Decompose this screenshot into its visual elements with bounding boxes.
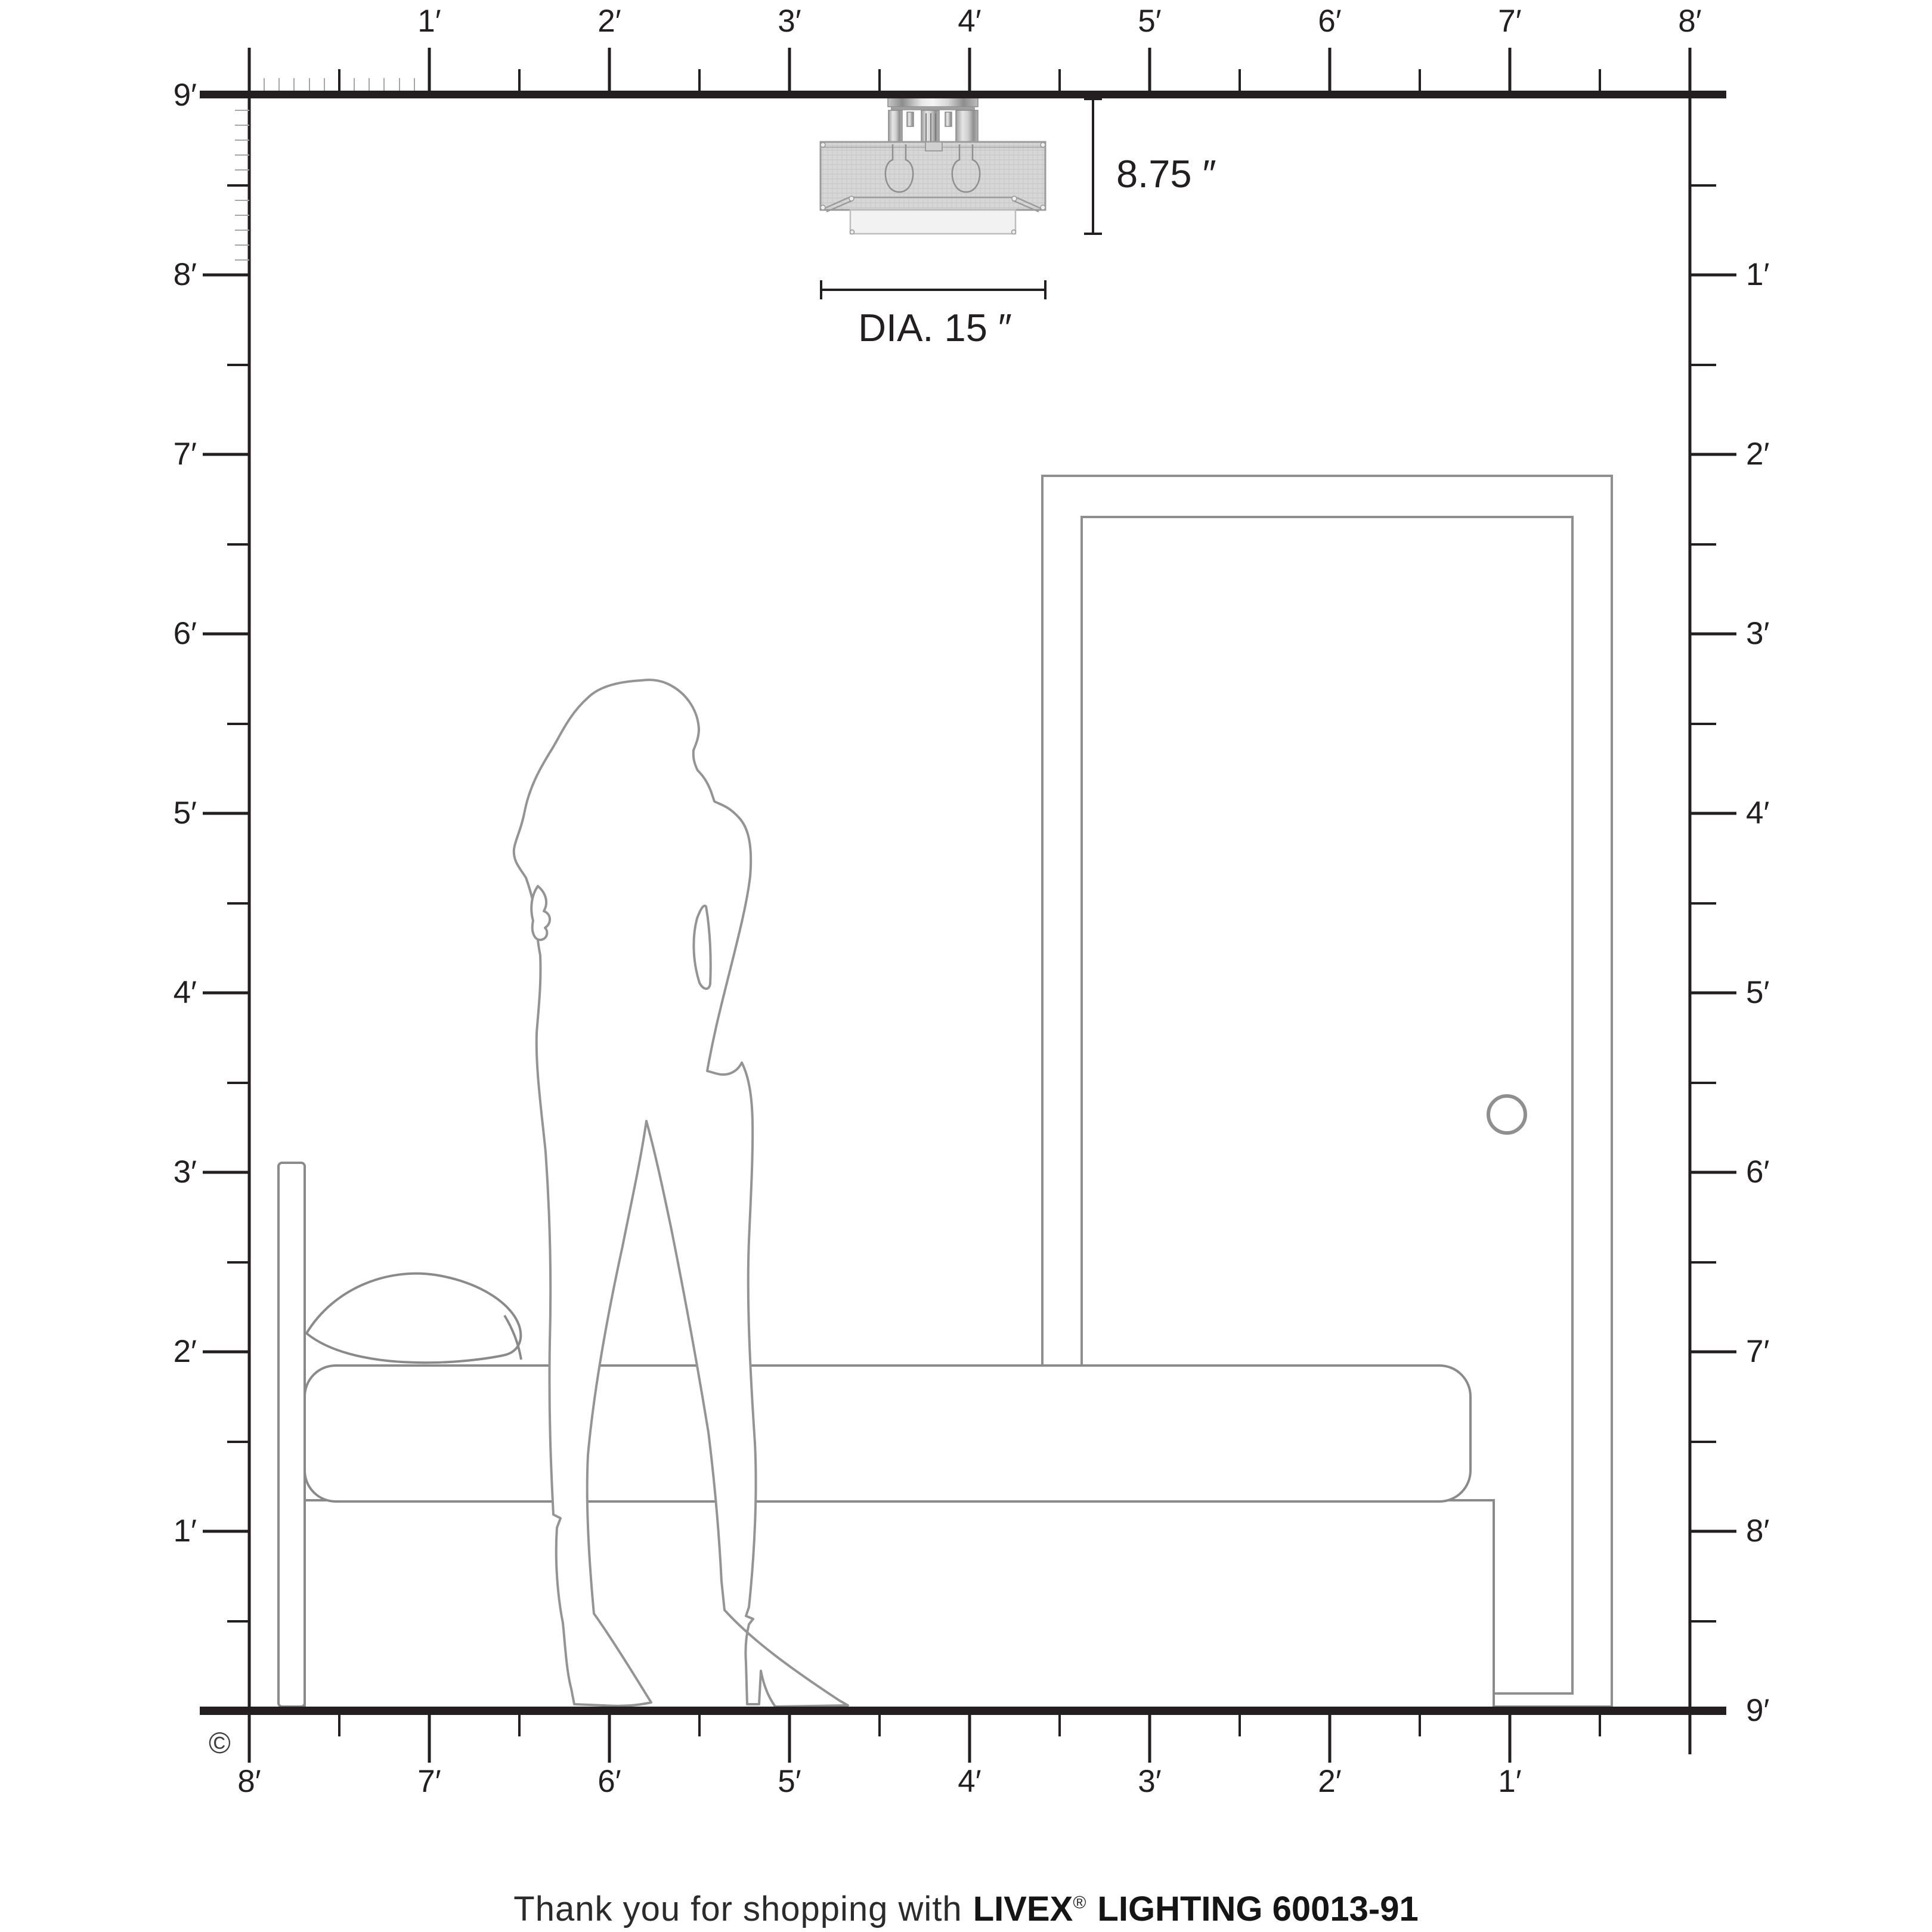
bottom-ruler-label: 5′ [748,1765,831,1798]
top-ruler-label: 1′ [388,5,471,38]
mattress [305,1366,1470,1501]
fixture-height-dimension-label: 8.75 ″ [1116,151,1216,196]
top-ruler-label: 7′ [1468,5,1552,38]
right-ruler-label: 4′ [1746,797,1877,830]
left-ruler-label: 8′ [66,258,197,292]
bottom-ruler-label: 7′ [388,1765,471,1798]
fixture-drum-shade [821,142,1045,210]
right-ruler-label: 9′ [1746,1694,1877,1727]
diameter-dimension [821,280,1045,299]
top-ruler-label: 8′ [1648,5,1732,38]
top-ruler-label: 4′ [928,5,1011,38]
left-ruler-label: 6′ [66,617,197,651]
shade-socket-notch [925,142,942,151]
right-ruler-half-ticks [1690,185,1716,1621]
height-dimension [1084,99,1102,234]
top-ruler-ticks [429,48,1510,91]
left-ruler-half-ticks [227,185,249,1621]
left-ruler-label: 4′ [66,976,197,1010]
bottom-ruler-label: 4′ [928,1765,1011,1798]
right-ruler-label: 2′ [1746,438,1877,471]
footer-thanks-text: Thank you for shopping with [513,1890,962,1928]
bottom-ruler-label: 3′ [1108,1765,1191,1798]
footer-product-number: LIGHTING 60013-91 [1097,1890,1418,1928]
left-ruler-label: 2′ [66,1335,197,1368]
top-ruler-label: 5′ [1108,5,1191,38]
right-ruler-label: 8′ [1746,1515,1877,1548]
door-knob [1488,1096,1525,1133]
bottom-ruler-label: 2′ [1288,1765,1371,1798]
left-ruler-label: 9′ [66,79,197,112]
fixture-stems [888,110,978,143]
dimension-diagram-page: 1′ 2′ 3′ 4′ 5′ 6′ 7′ 8′ 9′ 8′ 7′ 6′ 5′ 4… [0,0,1932,1932]
pillow [306,1274,521,1363]
right-ruler-label: 5′ [1746,976,1877,1010]
registered-trademark-icon: ® [1073,1893,1086,1913]
light-fixture [821,98,1045,234]
top-ruler-label: 3′ [748,5,831,38]
headboard-post [278,1163,305,1707]
fixture-canopy-flange [891,107,975,110]
bottom-ruler-label: 6′ [568,1765,651,1798]
room-scale-drawing [0,0,1932,1932]
floor-line [200,1707,1726,1715]
left-ruler-label: 3′ [66,1156,197,1189]
bed [278,1163,1494,1708]
right-ruler-label: 7′ [1746,1335,1877,1368]
left-ruler-label: 1′ [66,1515,197,1548]
top-ruler-label: 2′ [568,5,651,38]
left-ruler-label: 7′ [66,438,197,471]
footer-brand-line: Thank you for shopping withLIVEX®LIGHTIN… [0,1889,1932,1929]
fixture-diameter-dimension-label: DIA. 15 ″ [810,305,1060,350]
fixture-diffuser [850,210,1015,234]
fixture-canopy [888,98,978,107]
bed-base [305,1500,1494,1708]
bottom-ruler-label: 8′ [208,1765,291,1798]
right-ruler-label: 6′ [1746,1156,1877,1189]
right-ruler-label: 1′ [1746,258,1877,292]
top-ruler-label: 6′ [1288,5,1371,38]
footer-brand-name: LIVEX [973,1890,1073,1928]
right-ruler-label: 3′ [1746,617,1877,651]
left-ruler-label: 5′ [66,797,197,830]
ceiling-line [200,91,1726,98]
bottom-ruler-label: 1′ [1468,1765,1552,1798]
copyright-symbol: © [209,1726,231,1760]
